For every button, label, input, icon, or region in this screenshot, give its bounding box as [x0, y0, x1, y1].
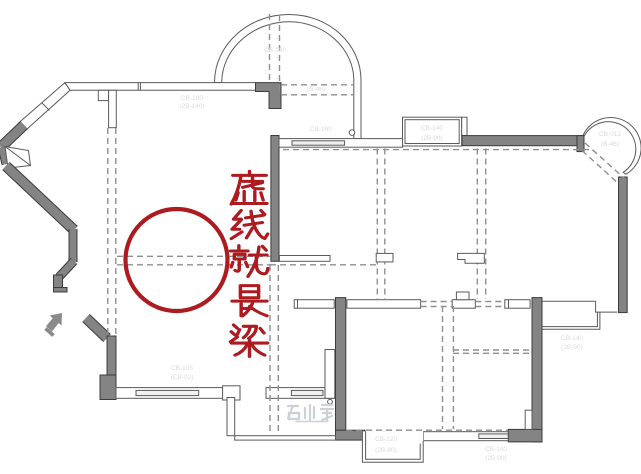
svg-text:CB-100: CB-100	[181, 95, 203, 102]
svg-text:(2B-90): (2B-90)	[561, 344, 583, 351]
svg-text:(B-46): (B-46)	[601, 141, 619, 148]
svg-text:(CB-02): (CB-02)	[171, 374, 194, 381]
svg-text:CB-160: CB-160	[310, 126, 332, 133]
svg-text:(2B-140): (2B-140)	[179, 103, 204, 110]
svg-text:(2B-90): (2B-90)	[375, 447, 397, 454]
svg-text:CB-140: CB-140	[561, 335, 583, 342]
svg-text:(2B-90): (2B-90)	[421, 135, 443, 142]
svg-text:CB-012: CB-012	[599, 131, 621, 138]
svg-text:CB-140: CB-140	[421, 125, 443, 132]
svg-text:CB-105: CB-105	[171, 365, 193, 372]
svg-text:(2B-90): (2B-90)	[485, 455, 507, 462]
svg-text:CB-120: CB-120	[375, 436, 397, 443]
svg-text:CB-100: CB-100	[264, 47, 286, 54]
svg-text:CB-140: CB-140	[485, 446, 507, 453]
svg-text:(B-46): (B-46)	[307, 86, 325, 93]
